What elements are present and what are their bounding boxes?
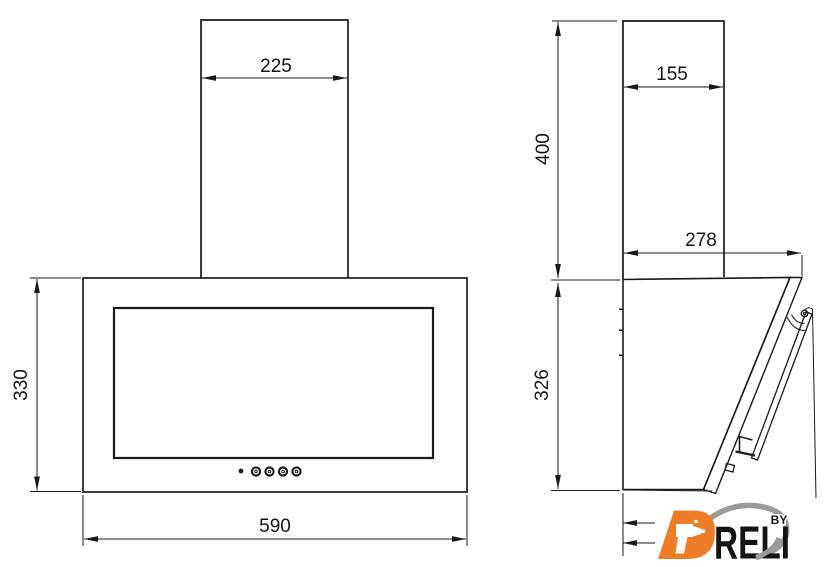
dimension-front-body-width: 590 bbox=[83, 495, 467, 546]
dimension-label-330: 330 bbox=[11, 369, 32, 401]
hood-dimension-drawing: 225 330 590 bbox=[0, 0, 835, 567]
dimension-label-225: 225 bbox=[260, 56, 292, 77]
side-body-outline bbox=[623, 278, 790, 490]
front-glass-panel bbox=[114, 308, 433, 458]
dimension-side-chimney-height: 400 bbox=[533, 21, 617, 278]
front-view: 225 330 590 bbox=[11, 20, 467, 546]
dimension-front-duct-width: 225 bbox=[202, 56, 347, 78]
control-buttons-icon bbox=[239, 467, 301, 475]
dimension-label-400: 400 bbox=[533, 133, 554, 165]
side-view: 400 155 278 326 bbox=[532, 21, 816, 556]
drill-icon bbox=[658, 511, 715, 560]
logo-suffix: BY bbox=[771, 513, 788, 527]
dimension-side-body-height: 326 bbox=[532, 283, 620, 491]
side-front-panel-strip bbox=[704, 278, 803, 494]
dimension-label-590: 590 bbox=[259, 516, 291, 537]
dimension-side-total-depth: 278 bbox=[624, 230, 802, 276]
technical-drawing-page: 225 330 590 bbox=[0, 0, 835, 567]
door-bracket bbox=[736, 437, 756, 456]
dimension-label-278: 278 bbox=[685, 230, 717, 251]
brand-logo: RELI BY bbox=[658, 505, 790, 567]
front-body-outline bbox=[83, 278, 467, 492]
dimension-side-duct-depth: 155 bbox=[624, 64, 723, 87]
bottom-depth-arrows bbox=[623, 493, 655, 556]
dimension-label-155: 155 bbox=[656, 64, 688, 85]
dimension-label-326: 326 bbox=[532, 369, 553, 401]
dimension-front-body-height: 330 bbox=[11, 278, 81, 492]
